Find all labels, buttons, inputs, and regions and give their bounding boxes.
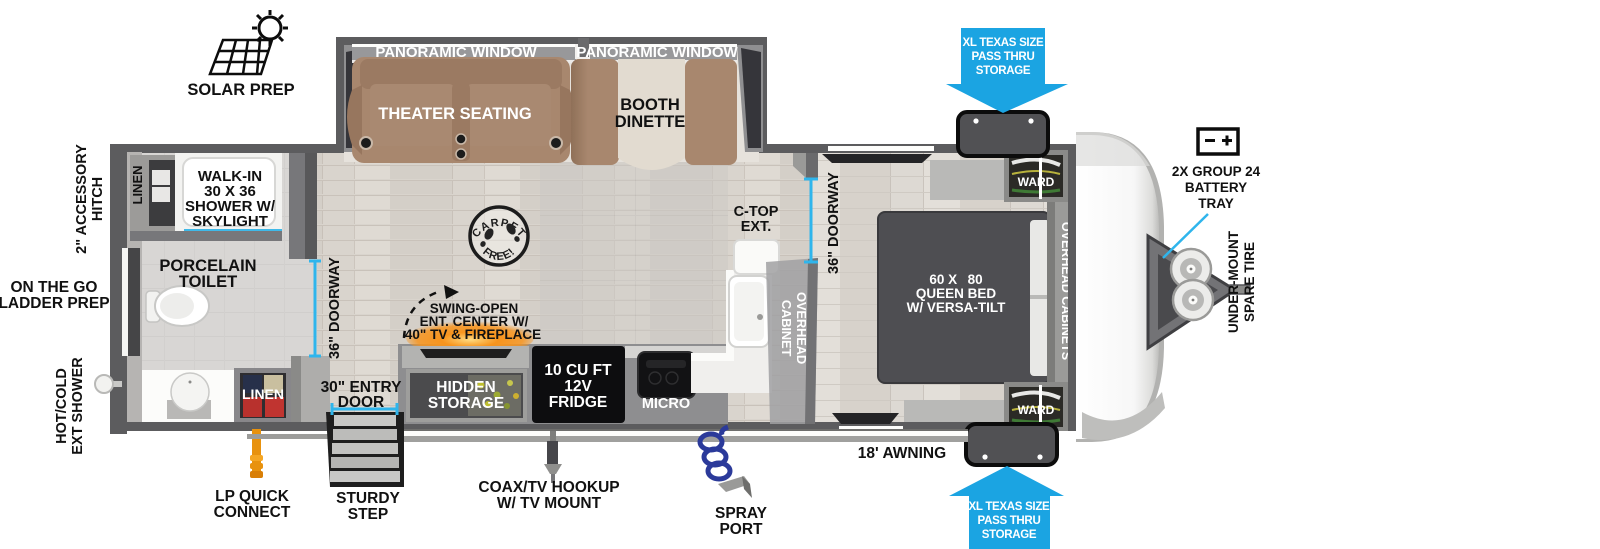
svg-text:W/ VERSA-TILT: W/ VERSA-TILT xyxy=(907,300,1006,315)
svg-text:STORAGE: STORAGE xyxy=(428,395,504,412)
svg-text:BATTERY: BATTERY xyxy=(1185,180,1247,195)
svg-text:12V: 12V xyxy=(564,378,592,395)
svg-text:QUEEN BED: QUEEN BED xyxy=(916,286,997,301)
svg-text:SPARE TIRE: SPARE TIRE xyxy=(1242,242,1257,322)
svg-text:ON THE GO: ON THE GO xyxy=(11,279,98,296)
svg-text:HIDDEN: HIDDEN xyxy=(436,379,495,396)
svg-text:STORAGE: STORAGE xyxy=(982,529,1037,541)
svg-text:UNDER-MOUNT: UNDER-MOUNT xyxy=(1226,230,1241,333)
svg-text:36" DOORWAY: 36" DOORWAY xyxy=(826,172,842,274)
svg-text:STEP: STEP xyxy=(348,506,388,523)
svg-text:BOOTH: BOOTH xyxy=(620,96,680,114)
svg-text:PASS THRU: PASS THRU xyxy=(972,51,1035,63)
svg-text:EXT.: EXT. xyxy=(741,219,772,235)
svg-text:XL TEXAS SIZE: XL TEXAS SIZE xyxy=(969,501,1051,513)
svg-text:LADDER PREP: LADDER PREP xyxy=(0,295,110,312)
svg-text:FRIDGE: FRIDGE xyxy=(549,394,608,411)
svg-text:CABINET: CABINET xyxy=(779,300,794,357)
svg-text:CONNECT: CONNECT xyxy=(214,504,291,521)
svg-text:2X GROUP 24: 2X GROUP 24 xyxy=(1172,164,1261,179)
svg-text:PASS THRU: PASS THRU xyxy=(978,515,1041,527)
svg-text:40" TV & FIREPLACE: 40" TV & FIREPLACE xyxy=(405,327,541,342)
svg-text:DINETTE: DINETTE xyxy=(615,113,686,131)
svg-text:THEATER SEATING: THEATER SEATING xyxy=(378,105,531,123)
svg-text:HITCH: HITCH xyxy=(90,177,106,221)
svg-text:PORT: PORT xyxy=(719,521,763,538)
svg-text:HOT/COLD: HOT/COLD xyxy=(54,368,70,444)
svg-text:XL TEXAS SIZE: XL TEXAS SIZE xyxy=(963,37,1045,49)
svg-text:LP QUICK: LP QUICK xyxy=(215,488,290,505)
svg-text:OVERHEAD: OVERHEAD xyxy=(794,292,809,364)
svg-text:SPRAY: SPRAY xyxy=(715,505,768,522)
svg-text:LINEN: LINEN xyxy=(130,166,145,205)
svg-text:10 CU FT: 10 CU FT xyxy=(544,362,612,379)
svg-text:36" DOORWAY: 36" DOORWAY xyxy=(327,257,343,359)
svg-text:60 X 80: 60 X 80 xyxy=(929,272,982,287)
svg-text:LINEN: LINEN xyxy=(242,386,284,402)
svg-text:W/ TV MOUNT: W/ TV MOUNT xyxy=(497,495,602,512)
svg-text:PANORAMIC WINDOW: PANORAMIC WINDOW xyxy=(576,44,738,61)
svg-text:MICRO: MICRO xyxy=(642,396,690,412)
svg-text:DOOR: DOOR xyxy=(338,394,385,411)
svg-text:STURDY: STURDY xyxy=(336,490,400,507)
svg-text:COAX/TV HOOKUP: COAX/TV HOOKUP xyxy=(478,479,619,496)
svg-text:WARD: WARD xyxy=(1018,175,1055,189)
svg-text:EXT SHOWER: EXT SHOWER xyxy=(70,357,86,455)
svg-text:TOILET: TOILET xyxy=(179,273,237,291)
svg-text:STORAGE: STORAGE xyxy=(976,65,1031,77)
svg-text:C-TOP: C-TOP xyxy=(734,204,779,220)
svg-text:2" ACCESSORY: 2" ACCESSORY xyxy=(74,144,90,254)
svg-text:18' AWNING: 18' AWNING xyxy=(858,445,946,462)
svg-text:TRAY: TRAY xyxy=(1198,196,1234,211)
svg-text:SKYLIGHT: SKYLIGHT xyxy=(192,213,268,230)
svg-text:SOLAR PREP: SOLAR PREP xyxy=(187,81,294,99)
svg-text:WARD: WARD xyxy=(1018,403,1055,417)
